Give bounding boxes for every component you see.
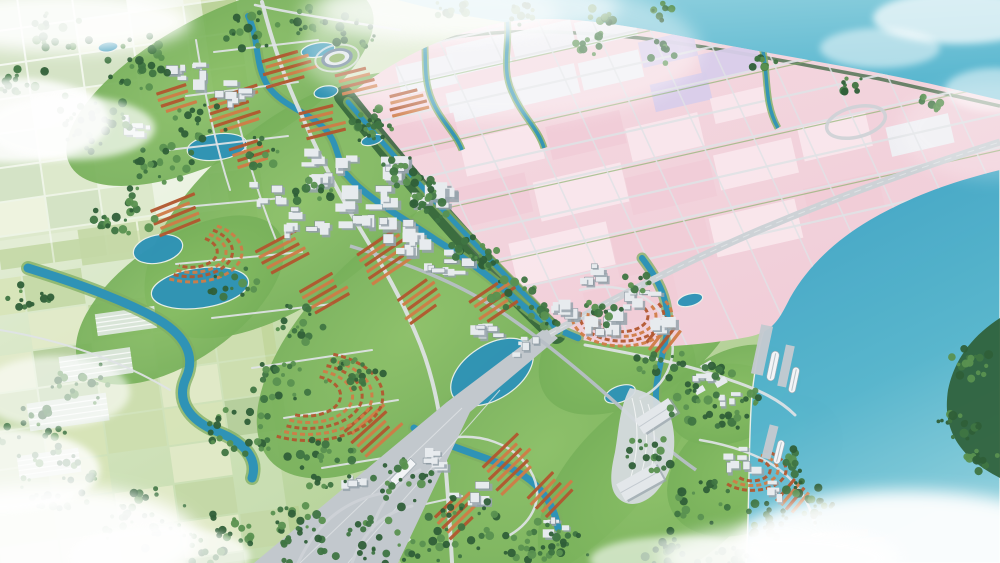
- aerial-scene: [0, 0, 1000, 563]
- masterplan-render: [0, 0, 1000, 563]
- cloud: [820, 28, 940, 68]
